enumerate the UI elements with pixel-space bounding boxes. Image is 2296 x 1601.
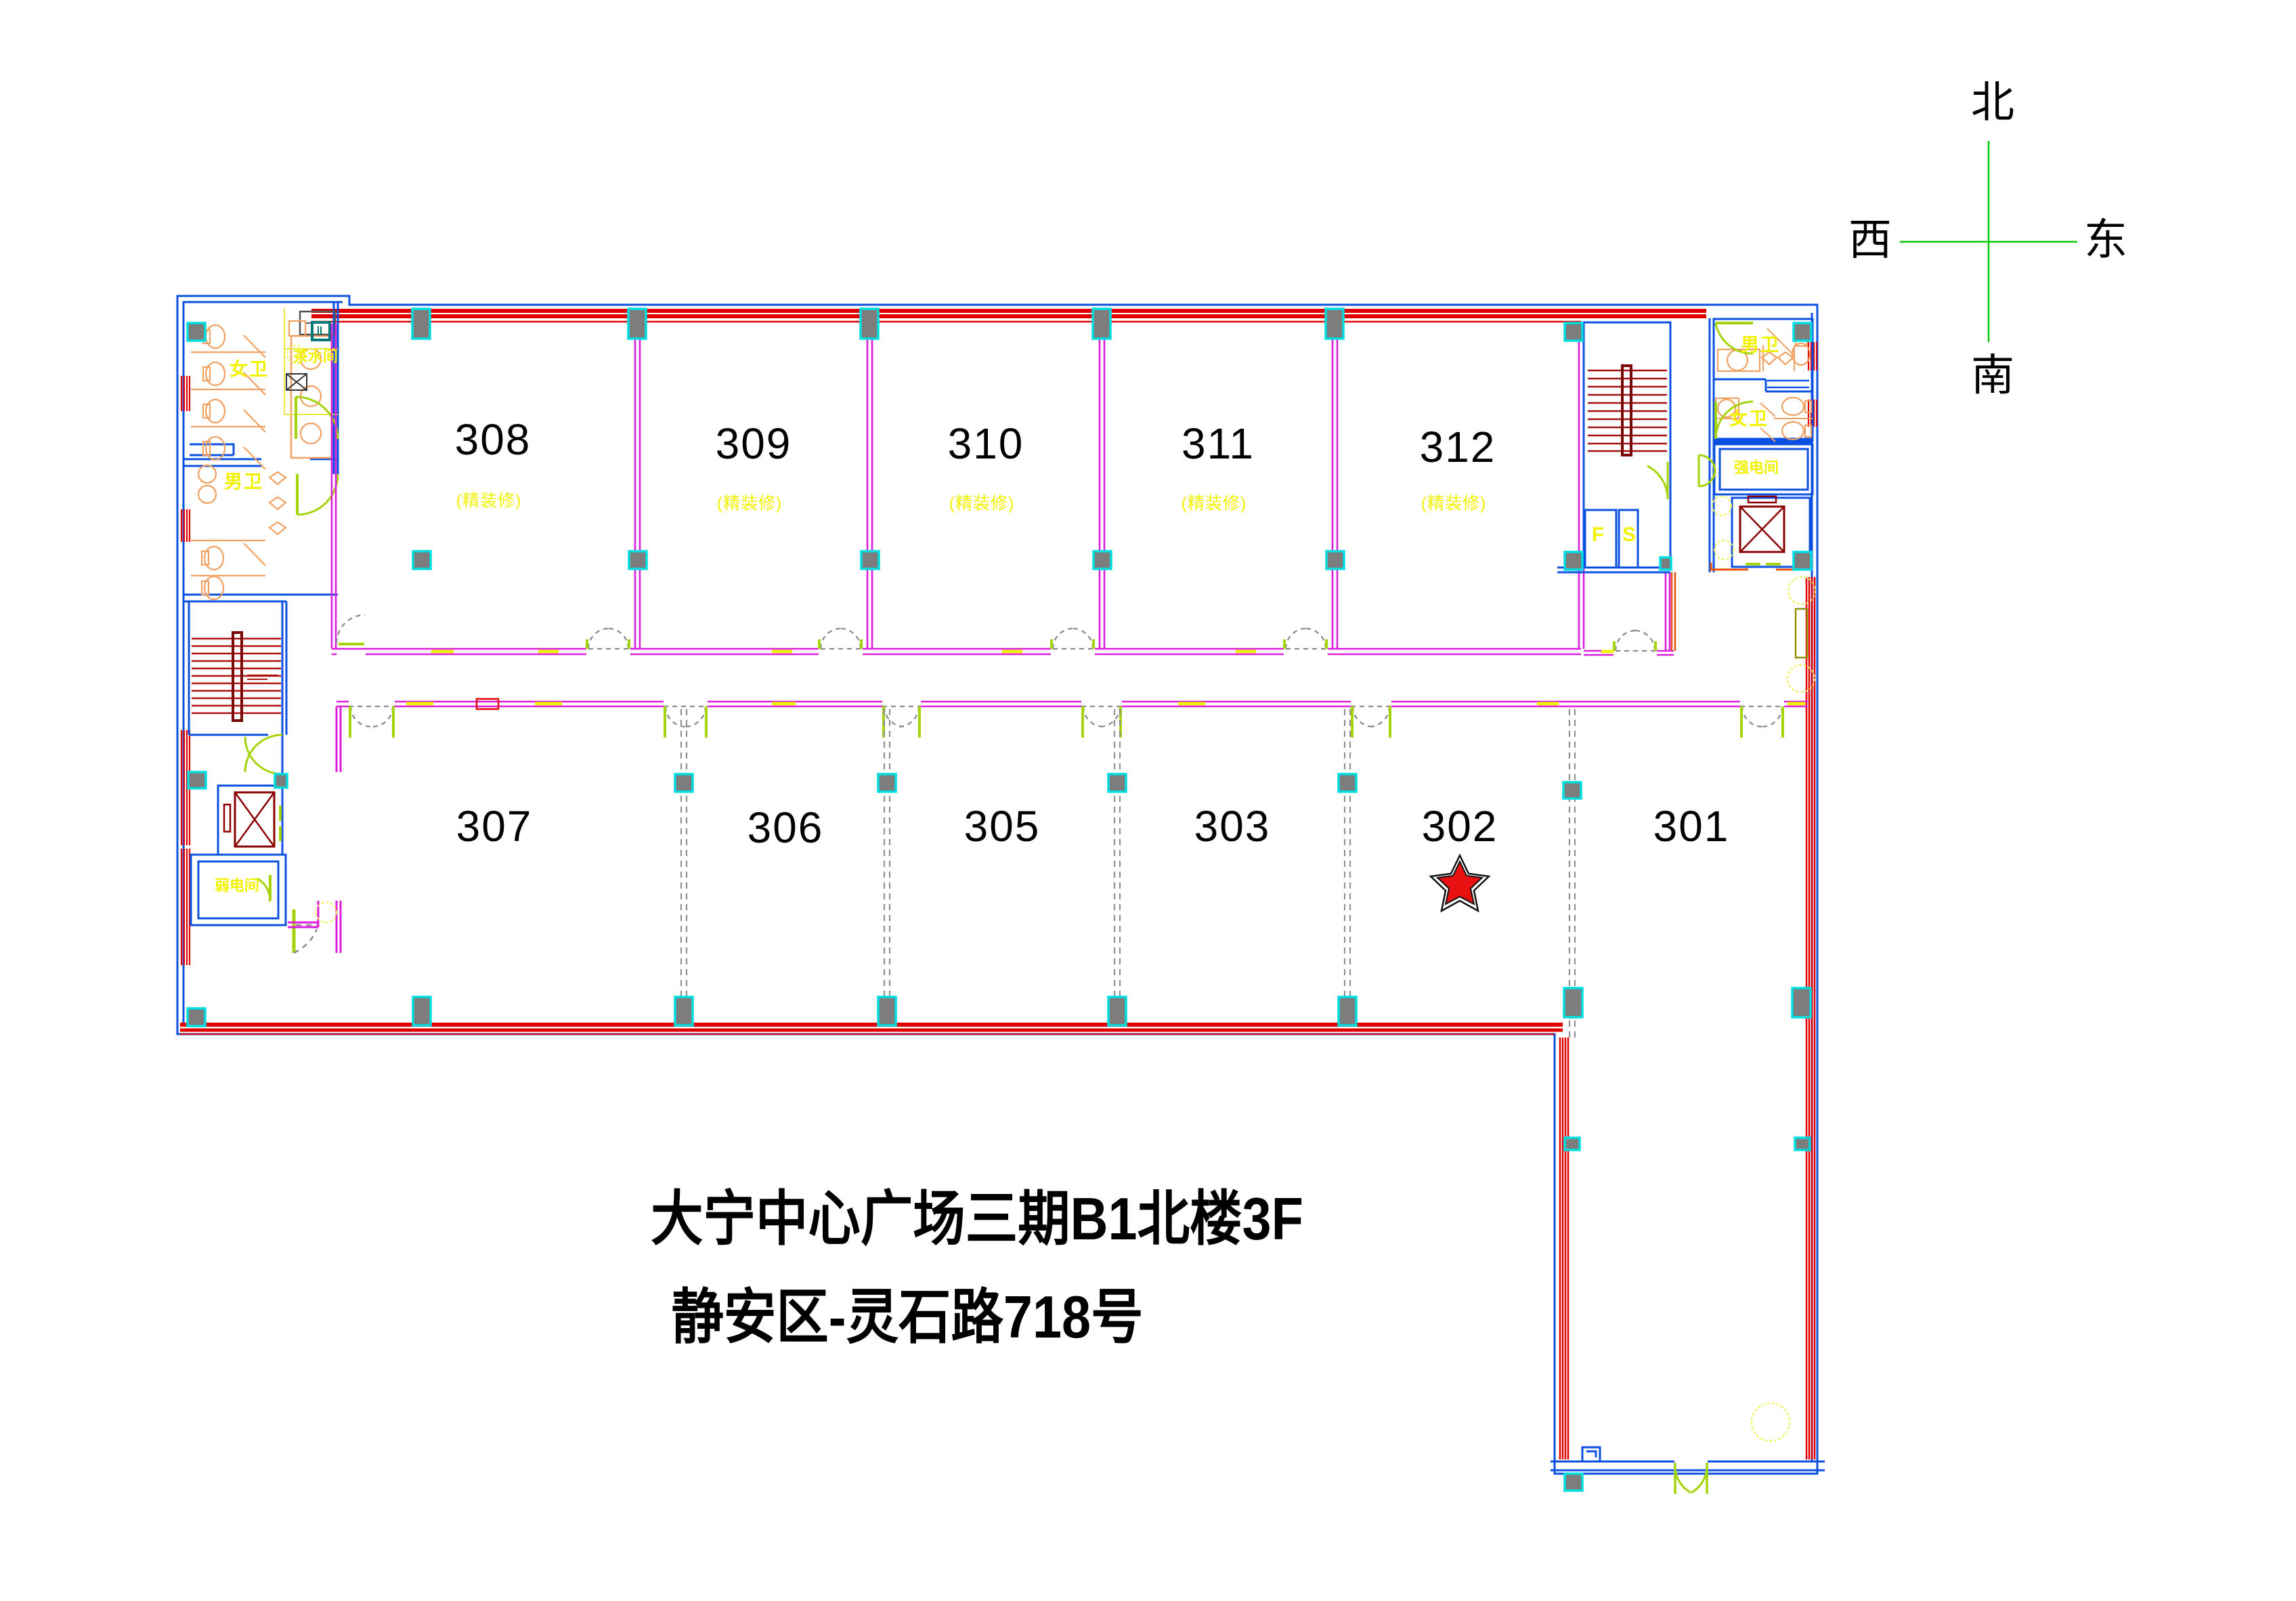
corridor-right-wall-orange [1672, 572, 1675, 651]
label-womens-toilet-left: 女卫 [230, 361, 269, 379]
fire-hose-box [477, 699, 498, 709]
label-stair-f: F [1592, 525, 1604, 545]
floor-plan-linework [0, 0, 2296, 1601]
room-label-307: 307 [456, 805, 533, 848]
room-label-301: 301 [1653, 805, 1730, 848]
room-note-308: (精装修) [456, 493, 522, 510]
compass-north: 北 [1971, 81, 2014, 125]
room-label-305: 305 [964, 805, 1041, 848]
compass-cross [1900, 141, 2077, 342]
right-elevator [1740, 496, 1784, 552]
room-note-309: (精装修) [717, 496, 783, 513]
label-stair-s: S [1622, 525, 1636, 545]
left-core-walls [184, 302, 338, 925]
label-tea-room: 茶水间 [293, 349, 338, 364]
label-high-voltage-room: 强电间 [1734, 461, 1779, 475]
plan-title-line1: 大宁中心广场三期B1北楼3F [651, 1189, 1303, 1249]
label-low-voltage-room: 弱电间 [215, 878, 259, 893]
room-label-312: 312 [1420, 425, 1496, 469]
left-vestibule-walls [288, 706, 341, 953]
plan-title-line2: 静安区-灵石路718号 [671, 1287, 1143, 1347]
duct-shaft [1796, 609, 1807, 658]
right-stairs [1588, 366, 1667, 455]
room-note-312: (精装修) [1421, 496, 1487, 513]
room-label-302: 302 [1422, 805, 1498, 848]
top-room-partitions [332, 324, 1674, 655]
floor-plan-canvas: 308 309 310 311 312 (精装修) (精装修) (精装修) (精… [0, 0, 2296, 1601]
compass-east: 东 [2084, 219, 2127, 262]
left-stairs [192, 633, 281, 721]
star-marker [1431, 855, 1489, 911]
compass-south: 南 [1971, 354, 2014, 398]
label-mens-toilet-left: 男卫 [224, 473, 263, 492]
extension-entry-door [1675, 1463, 1707, 1494]
room-label-308: 308 [455, 418, 532, 461]
room-note-311: (精装修) [1182, 496, 1247, 513]
vestibule-door-arc [294, 929, 317, 953]
room-note-310: (精装修) [949, 496, 1015, 513]
room-label-309: 309 [716, 422, 792, 465]
room-label-306: 306 [748, 806, 824, 849]
room-label-311: 311 [1182, 422, 1255, 465]
label-womens-toilet-right: 女卫 [1729, 410, 1769, 429]
left-elevator [224, 792, 274, 847]
compass-west: 西 [1848, 219, 1892, 262]
label-mens-toilet-right: 男卫 [1741, 337, 1780, 355]
bottom-room-partitions [681, 709, 1575, 1038]
top-room-doors [337, 615, 1657, 651]
room-label-310: 310 [948, 422, 1024, 465]
right-stair-door [1647, 462, 1668, 499]
room-label-303: 303 [1194, 805, 1271, 848]
